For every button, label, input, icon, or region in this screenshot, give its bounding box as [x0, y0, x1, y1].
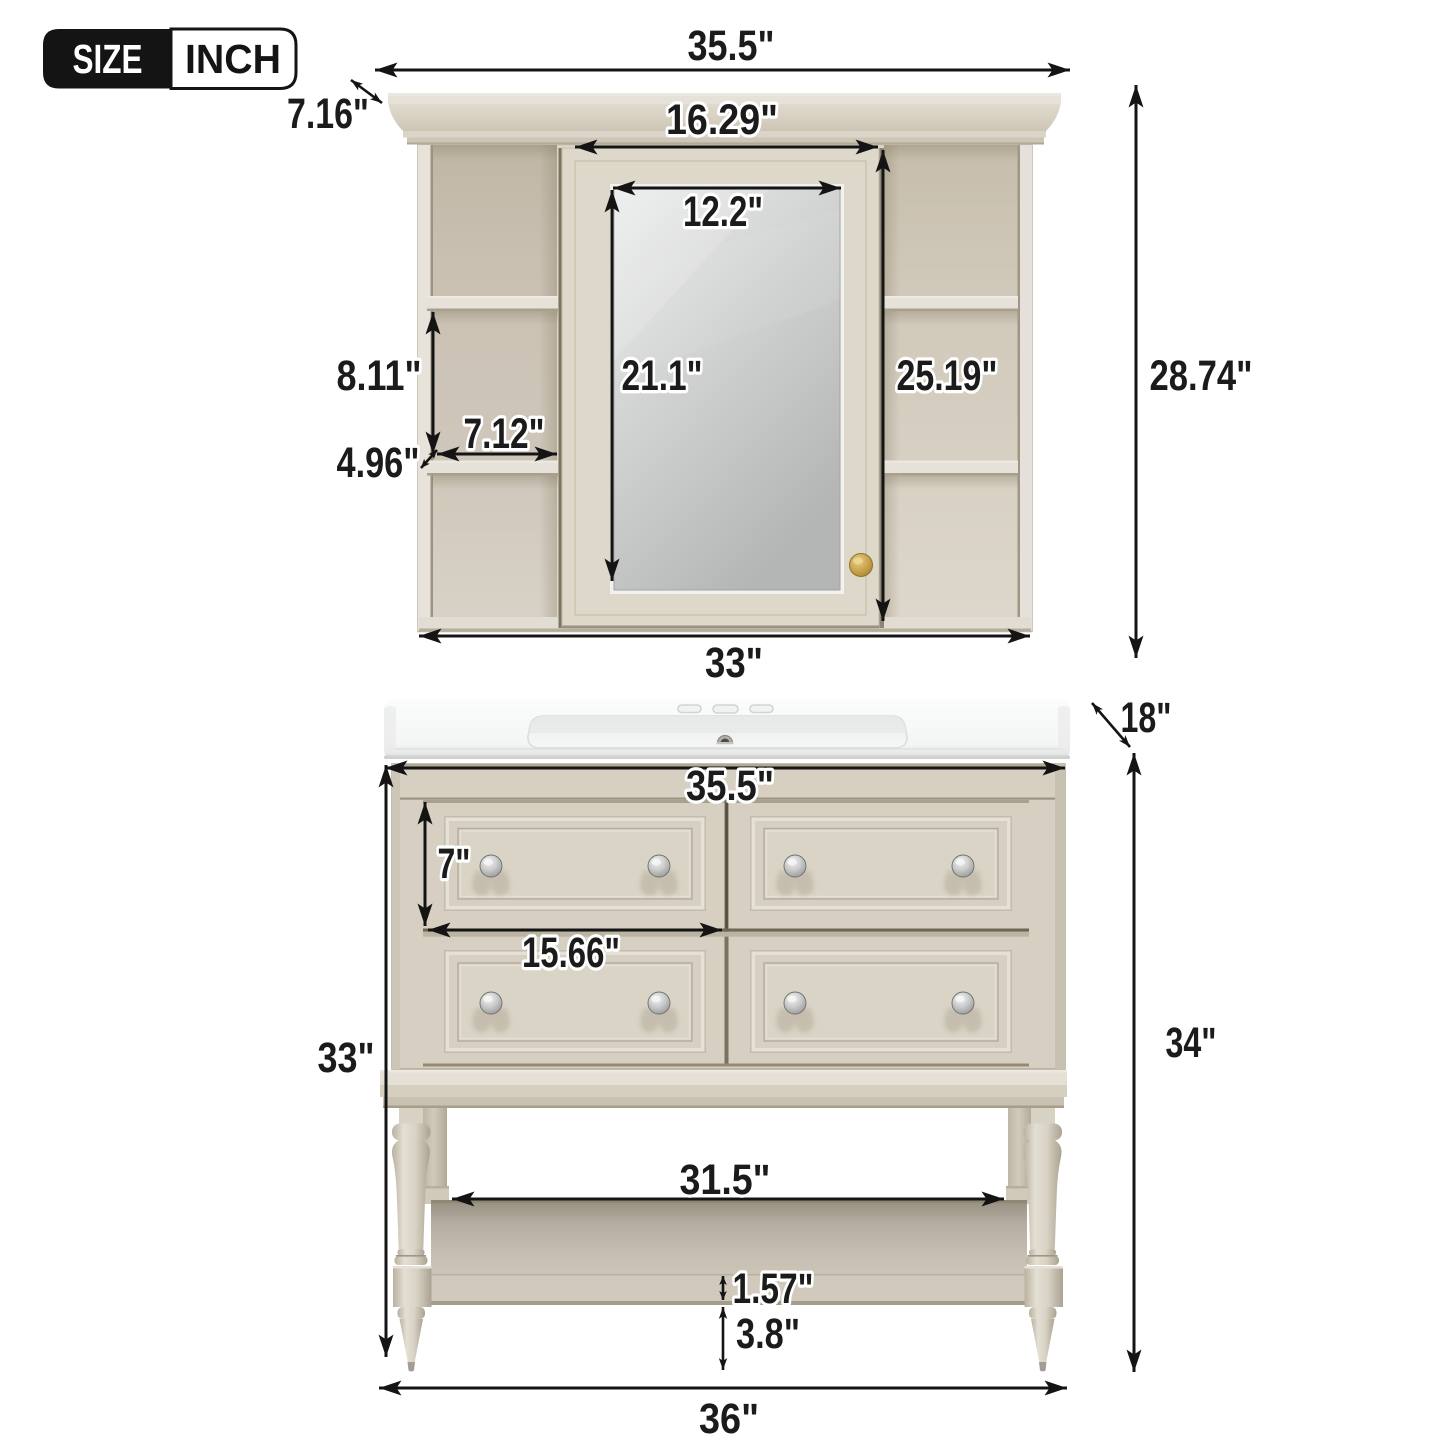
svg-text:15.66": 15.66" [522, 929, 620, 977]
svg-text:36": 36" [699, 1395, 759, 1443]
svg-text:34": 34" [1166, 1019, 1217, 1067]
svg-text:3.8": 3.8" [736, 1310, 800, 1358]
svg-text:16.29": 16.29" [666, 96, 778, 144]
svg-text:7.16": 7.16" [287, 90, 369, 138]
svg-text:35.5": 35.5" [686, 762, 774, 810]
svg-text:1.57": 1.57" [733, 1265, 814, 1313]
svg-text:33": 33" [318, 1034, 375, 1082]
svg-text:8.11": 8.11" [337, 352, 422, 400]
svg-text:28.74": 28.74" [1150, 352, 1253, 400]
svg-text:4.96": 4.96" [337, 439, 420, 487]
svg-text:7": 7" [438, 840, 471, 888]
svg-text:31.5": 31.5" [680, 1156, 771, 1204]
svg-text:18": 18" [1121, 694, 1172, 742]
svg-text:25.19": 25.19" [897, 352, 998, 400]
svg-text:7.12": 7.12" [464, 410, 545, 458]
svg-text:33": 33" [705, 639, 763, 687]
svg-text:INCH: INCH [185, 36, 281, 82]
svg-text:35.5": 35.5" [688, 22, 775, 70]
svg-text:SIZE: SIZE [73, 36, 143, 82]
svg-text:21.1": 21.1" [622, 352, 703, 400]
svg-text:12.2": 12.2" [683, 188, 763, 236]
